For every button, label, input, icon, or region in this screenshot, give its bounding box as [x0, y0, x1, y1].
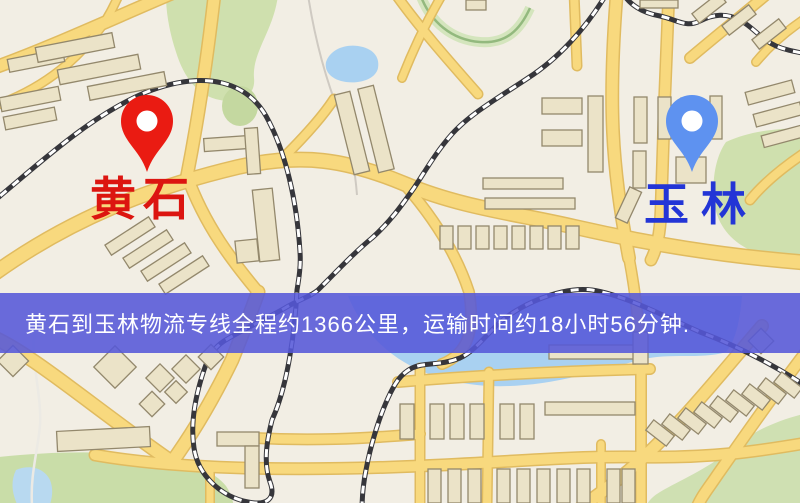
map-canvas [0, 0, 800, 503]
map: 黄石 玉林 黄石到玉林物流专线全程约1366公里，运输时间约18小时56分钟. [0, 0, 800, 503]
destination-city-label: 玉林 [644, 183, 758, 228]
route-info-banner: 黄石到玉林物流专线全程约1366公里，运输时间约18小时56分钟. [0, 293, 800, 353]
origin-city-label: 黄石 [90, 177, 196, 223]
route-info-text: 黄石到玉林物流专线全程约1366公里，运输时间约18小时56分钟. [0, 307, 690, 339]
